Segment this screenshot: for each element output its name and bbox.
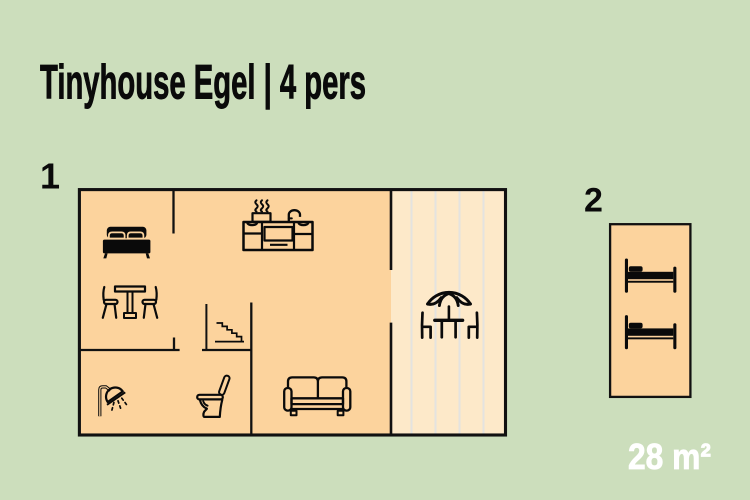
svg-text:28 m²: 28 m² — [628, 436, 711, 477]
svg-text:Tinyhouse Egel | 4 pers: Tinyhouse Egel | 4 pers — [40, 57, 366, 110]
svg-text:1: 1 — [40, 156, 60, 197]
svg-text:2: 2 — [584, 182, 603, 220]
